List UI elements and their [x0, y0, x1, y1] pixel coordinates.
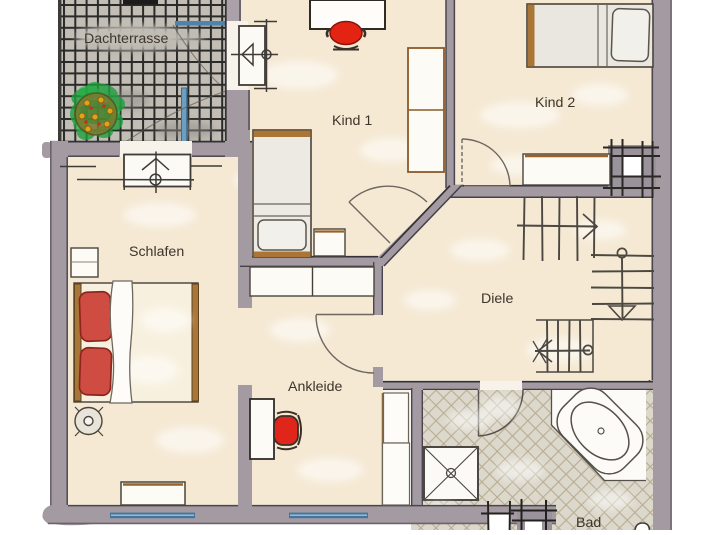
svg-text:Diele: Diele: [481, 291, 513, 307]
svg-text:Kind 1: Kind 1: [332, 113, 372, 129]
svg-text:Ankleide: Ankleide: [288, 379, 343, 395]
svg-text:Schlafen: Schlafen: [129, 244, 184, 260]
svg-text:Dachterrasse: Dachterrasse: [84, 31, 168, 47]
svg-text:Bad: Bad: [576, 515, 601, 530]
svg-text:Kind 2: Kind 2: [535, 95, 575, 111]
